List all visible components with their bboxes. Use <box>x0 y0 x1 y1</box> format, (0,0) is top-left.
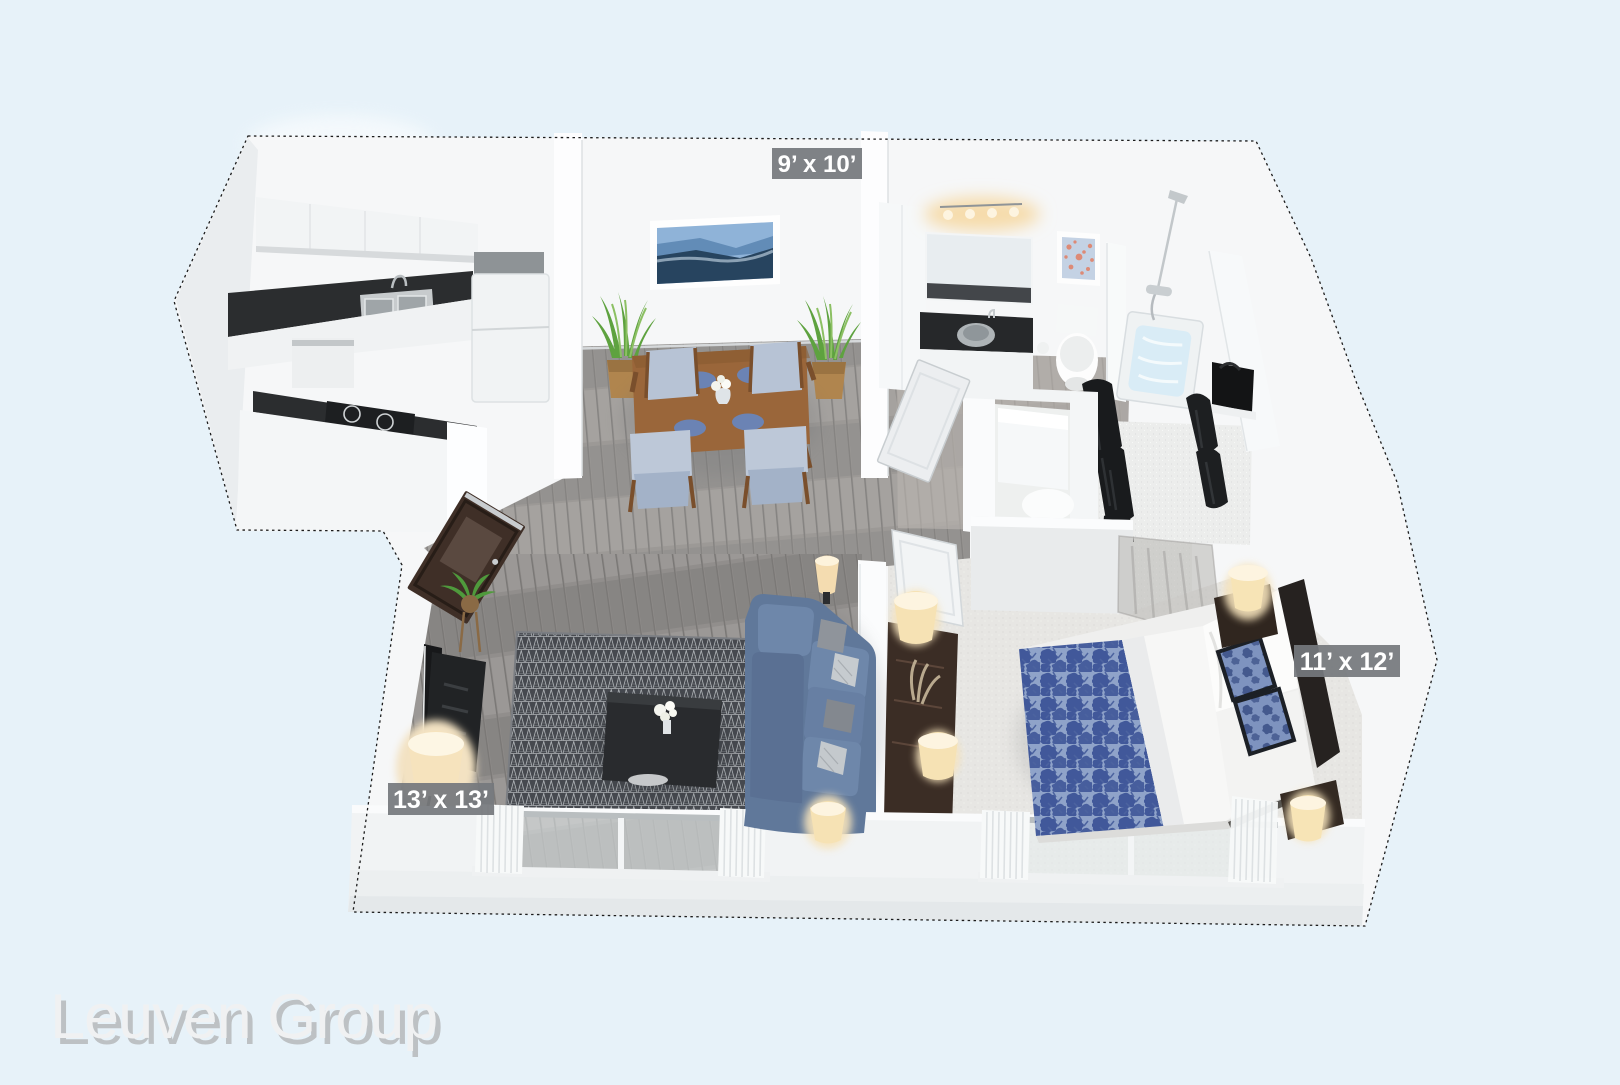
svg-text:Leuven Group: Leuven Group <box>50 982 437 1052</box>
svg-text:13’ x 13’: 13’ x 13’ <box>393 786 489 814</box>
svg-text:9’ x 10’: 9’ x 10’ <box>778 151 857 178</box>
svg-text:11’ x 12’: 11’ x 12’ <box>1300 648 1395 676</box>
